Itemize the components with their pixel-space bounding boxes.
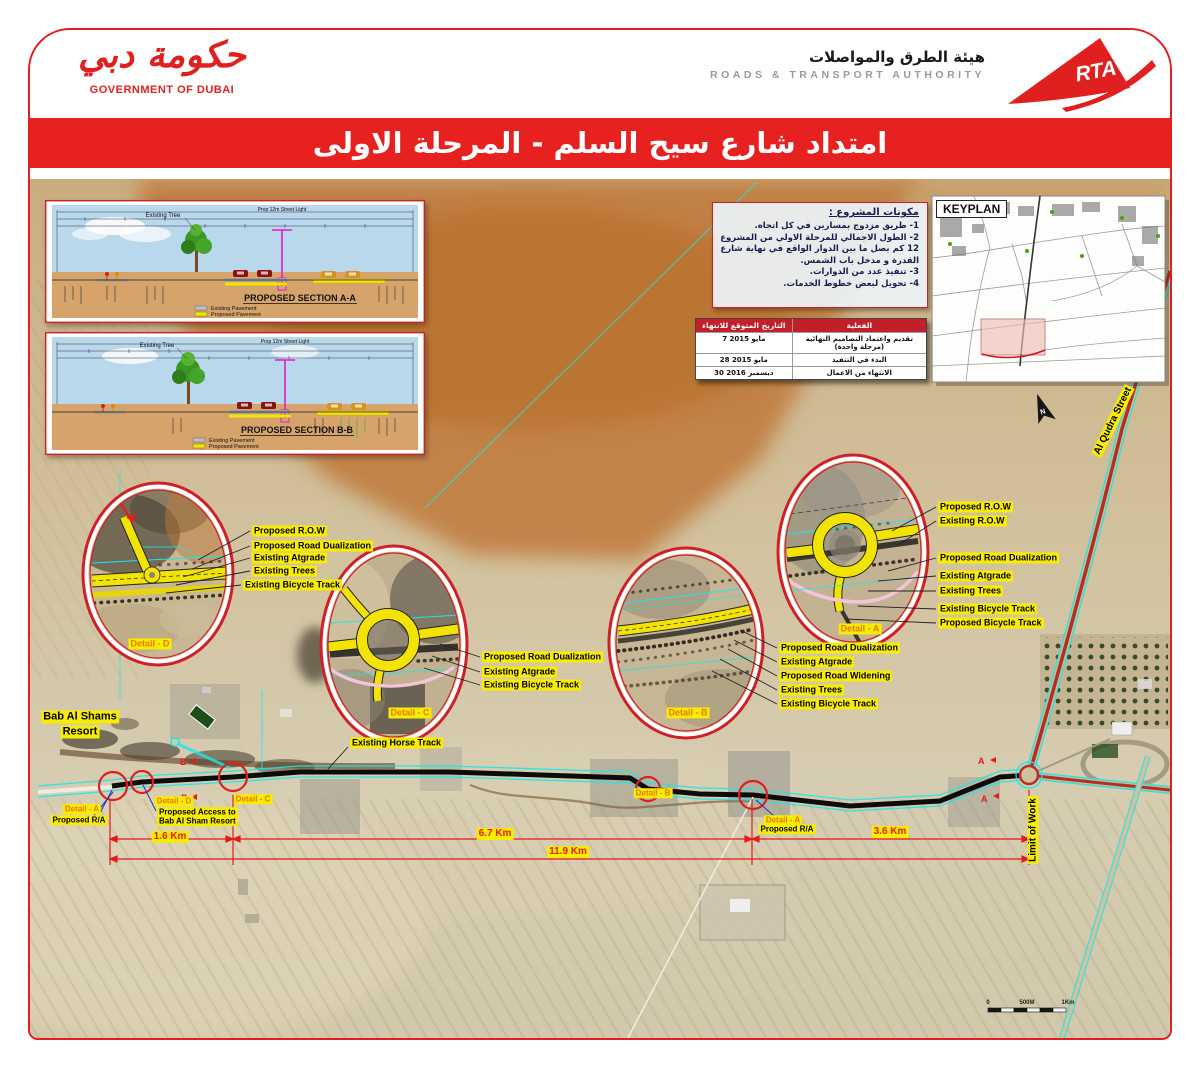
section-bb-title: PROPOSED SECTION B-B (241, 425, 354, 435)
title-map-gap (30, 168, 1170, 179)
detail-a-tag: Detail - A (839, 624, 882, 635)
detail-a-label-atgrade: Existing Atgrade (938, 571, 1013, 582)
detail-d-tag: Detail - D (128, 639, 171, 650)
detail-d-label-row: Proposed R.O.W (252, 526, 327, 537)
schedule-row-2: 28 مايو 2015 البدء في التنفيذ (696, 354, 926, 367)
header: حكومة دبي GOVERNMENT OF DUBAI هيئة الطرق… (30, 30, 1170, 118)
access-label-line2: Bab Al Sham Resort (157, 816, 238, 826)
west-detail-a-tag: Detail - A (63, 804, 101, 814)
section-bb-panel: Existing Tree Prop 12m Street Light (45, 332, 425, 460)
project-item-3: 3- تنفيذ عدد من الدوارات. (719, 267, 919, 279)
distance-6-7km: 6.7 Km (477, 828, 514, 840)
schedule-table: التاريخ المتوقع للانتهاء الفعلية 7 مايو … (695, 318, 927, 380)
project-components-title: مكونات المشروع : (719, 207, 919, 218)
rta-wordmark: هيئة الطرق والمواصلات ROADS & TRANSPORT … (710, 48, 985, 81)
distance-1-6km: 1.6 Km (152, 831, 189, 843)
keyplan-project-area (981, 319, 1045, 355)
detail-c-label-bicycle: Existing Bicycle Track (482, 680, 581, 691)
existing-horse-track-label: Existing Horse Track (350, 738, 443, 749)
detail-d-label-dualization: Proposed Road Dualization (252, 541, 373, 552)
detail-b-label-bicycle: Existing Bicycle Track (779, 699, 878, 710)
existing-tree-label: Existing Tree (146, 213, 181, 219)
detail-c-label-dualization: Proposed Road Dualization (482, 652, 603, 663)
limit-roundabout (1020, 766, 1038, 784)
section-a-marker-bottom: A (981, 794, 988, 804)
schedule-activity-3: الانتهاء من الاعمال (793, 367, 926, 379)
government-of-dubai-logo: حكومة دبي GOVERNMENT OF DUBAI (78, 30, 246, 96)
detail-c-tag: Detail - C (388, 708, 431, 719)
project-components-box: مكونات المشروع : 1- طريق مزدوج بمسارين ف… (712, 202, 928, 308)
schedule-row-1: 7 مايو 2015 تقديم واعتماد التصاميم النها… (696, 333, 926, 354)
section-aa-title: PROPOSED SECTION A-A (244, 293, 356, 303)
detail-b-label-trees: Existing Trees (779, 685, 844, 696)
title-bar: امتداد شارع سيح السلم - المرحلة الاولى (30, 118, 1170, 168)
north-arrow-icon: N (1029, 391, 1055, 425)
rta-english-name: ROADS & TRANSPORT AUTHORITY (710, 69, 985, 81)
access-detail-d-tag: Detail - D (155, 796, 194, 806)
keyplan-map (932, 196, 1169, 386)
detail-a-label-dualization: Proposed Road Dualization (938, 553, 1059, 564)
government-of-dubai-caption: GOVERNMENT OF DUBAI (78, 84, 246, 96)
detail-b-label-dualization: Proposed Road Dualization (779, 643, 900, 654)
detail-b-label-atgrade: Existing Atgrade (779, 657, 854, 668)
project-item-2: 2- الطول الاجمالي للمرحلة الاولي من المش… (719, 233, 919, 268)
dubai-calligraphy-logo: حكومة دبي (78, 30, 246, 82)
scale-label-500m: 500M (1019, 1000, 1034, 1006)
street-light-label-b: Prop 12m Street Light (261, 339, 310, 345)
scale-label-1km: 1Km (1061, 1000, 1074, 1006)
detail-c-label-atgrade: Existing Atgrade (482, 667, 557, 678)
detail-d-label-trees: Existing Trees (252, 566, 317, 577)
distance-11-9km: 11.9 Km (547, 846, 589, 858)
project-item-4: 4- تحويل لبعض خطوط الخدمات. (719, 279, 919, 291)
section-b-marker-top: B (180, 757, 187, 767)
keyplan-title: KEYPLAN (936, 200, 1007, 218)
schedule-header-date: التاريخ المتوقع للانتهاء (696, 319, 793, 332)
detail-d-label-bicycle: Existing Bicycle Track (243, 580, 342, 591)
project-item-1: 1- طريق مزدوج بمسارين في كل اتجاه. (719, 221, 919, 233)
site-plan-map: B B A A N (30, 179, 1170, 1038)
detail-a-label-trees: Existing Trees (938, 586, 1003, 597)
legend-proposed-pavement-b: Proposed Pavement (209, 444, 259, 450)
schedule-activity-1: تقديم واعتماد التصاميم النهائية (مرحلة و… (793, 333, 926, 353)
detail-b-map-tag: Detail - B (634, 788, 673, 798)
limit-of-work-label: Limit of Work (1028, 796, 1039, 864)
detail-d-label-atgrade: Existing Atgrade (252, 553, 327, 564)
detail-a-label-erow: Existing R.O.W (938, 516, 1007, 527)
sheet-frame: حكومة دبي GOVERNMENT OF DUBAI هيئة الطرق… (28, 28, 1172, 1040)
scale-label-0: 0 (986, 1000, 989, 1006)
schedule-header-row: التاريخ المتوقع للانتهاء الفعلية (696, 319, 926, 333)
detail-c-map-tag: Detail - C (234, 794, 273, 804)
detail-a-label-pbicycle: Proposed Bicycle Track (938, 618, 1044, 629)
detail-a-label-prow: Proposed R.O.W (938, 502, 1013, 513)
schedule-date-2: 28 مايو 2015 (696, 354, 793, 366)
existing-tree-label-b: Existing Tree (140, 343, 175, 349)
east-proposed-ra-label: Proposed R/A (759, 824, 816, 834)
distance-3-6km: 3.6 Km (872, 826, 909, 838)
detail-a-label-ebicycle: Existing Bicycle Track (938, 604, 1037, 615)
schedule-date-3: 30 ديسمبر 2016 (696, 367, 793, 379)
page-title: امتداد شارع سيح السلم - المرحلة الاولى (313, 126, 887, 160)
schedule-date-1: 7 مايو 2015 (696, 333, 793, 353)
legend-proposed-pavement: Proposed Pavement (211, 312, 261, 318)
section-aa-panel: Existing Tree Prop 12m Street Light (45, 200, 425, 328)
poster-page: حكومة دبي GOVERNMENT OF DUBAI هيئة الطرق… (0, 0, 1200, 1069)
section-a-marker-top: A (978, 756, 985, 766)
bab-al-shams-label-line2: Resort (61, 726, 100, 739)
detail-b-tag: Detail - B (666, 708, 709, 719)
rta-logo: RTA (1000, 32, 1158, 117)
schedule-activity-2: البدء في التنفيذ (793, 354, 926, 366)
west-proposed-ra-label: Proposed R/A (51, 815, 108, 825)
rta-arabic-name: هيئة الطرق والمواصلات (710, 48, 985, 66)
detail-a-callout (775, 455, 928, 649)
bab-al-shams-label-line1: Bab Al Shams (41, 711, 119, 724)
schedule-header-activity: الفعلية (793, 319, 926, 332)
detail-b-label-widening: Proposed Road Widening (779, 671, 892, 682)
street-light-label: Prop 12m Street Light (258, 207, 307, 213)
schedule-row-3: 30 ديسمبر 2016 الانتهاء من الاعمال (696, 367, 926, 379)
scale-bar (988, 1008, 1066, 1012)
